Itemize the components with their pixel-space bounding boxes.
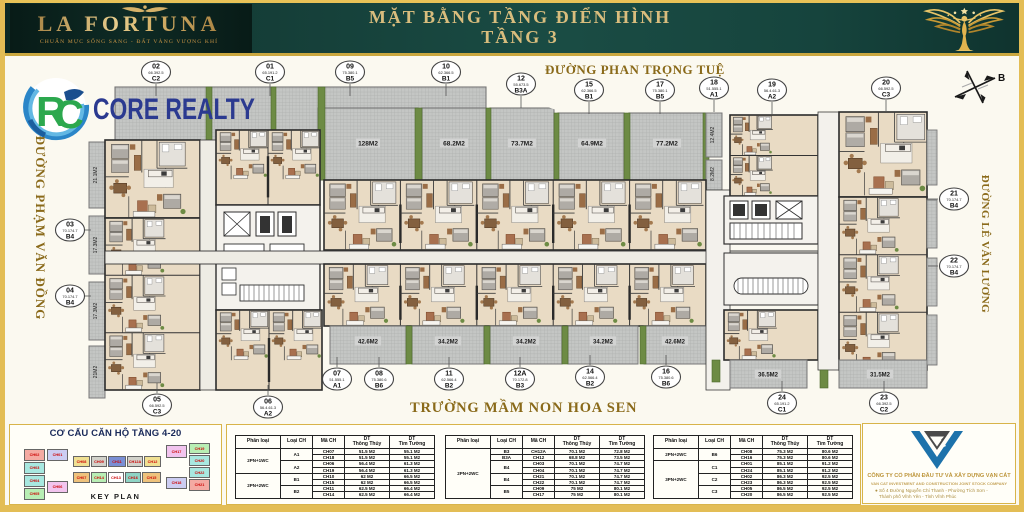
svg-text:75.380.6: 75.380.6 <box>658 375 673 380</box>
svg-text:62.366.5: 62.366.5 <box>581 88 596 93</box>
svg-text:34.2M2: 34.2M2 <box>593 340 614 346</box>
svg-text:56.4.61.3: 56.4.61.3 <box>260 405 276 410</box>
svg-text:70.172.8: 70.172.8 <box>512 377 527 382</box>
svg-text:17.3M2: 17.3M2 <box>93 302 99 319</box>
svg-text:21.1M2: 21.1M2 <box>93 166 99 183</box>
svg-text:B4: B4 <box>950 203 959 210</box>
svg-text:B5: B5 <box>656 94 665 101</box>
svg-text:51.555.1: 51.555.1 <box>329 377 344 382</box>
svg-text:B3: B3 <box>516 383 525 390</box>
svg-text:77.2M2: 77.2M2 <box>656 141 678 148</box>
svg-text:70.174.7: 70.174.7 <box>946 264 961 269</box>
svg-text:B4: B4 <box>66 234 75 241</box>
svg-text:75.380.6: 75.380.6 <box>371 377 386 382</box>
svg-text:B3A: B3A <box>514 88 527 95</box>
svg-text:C2: C2 <box>152 76 161 83</box>
svg-text:51.555.1: 51.555.1 <box>706 86 721 91</box>
svg-text:42.6M2: 42.6M2 <box>358 340 379 346</box>
svg-text:62.366.5: 62.366.5 <box>438 70 453 75</box>
svg-text:75.380.1: 75.380.1 <box>652 88 667 93</box>
svg-text:62.566.4: 62.566.4 <box>582 375 598 380</box>
svg-text:A2: A2 <box>768 94 777 101</box>
svg-text:CORE REALTY: CORE REALTY <box>93 93 255 126</box>
svg-text:56.4.61.3: 56.4.61.3 <box>764 88 780 93</box>
svg-text:34.2M2: 34.2M2 <box>438 340 459 346</box>
svg-text:B2: B2 <box>586 381 595 388</box>
svg-text:73.7M2: 73.7M2 <box>511 141 533 148</box>
svg-text:B2: B2 <box>445 383 454 390</box>
svg-text:17.3M2: 17.3M2 <box>93 236 99 253</box>
svg-text:55.673.5: 55.673.5 <box>513 82 528 87</box>
svg-text:B1: B1 <box>442 76 451 83</box>
svg-text:B: B <box>998 73 1005 84</box>
svg-text:B6: B6 <box>662 381 671 388</box>
svg-text:A1: A1 <box>710 92 719 99</box>
svg-text:B1: B1 <box>585 94 594 101</box>
svg-text:68.2M2: 68.2M2 <box>443 141 465 148</box>
svg-text:A2: A2 <box>264 411 273 418</box>
svg-text:C1: C1 <box>266 76 275 83</box>
svg-text:70.174.7: 70.174.7 <box>62 294 77 299</box>
svg-text:12.4M2: 12.4M2 <box>710 126 716 143</box>
svg-text:C3: C3 <box>153 409 162 416</box>
svg-text:B6: B6 <box>375 383 384 390</box>
svg-text:C2: C2 <box>880 407 889 414</box>
svg-text:36.5M2: 36.5M2 <box>758 373 779 379</box>
svg-text:66.392.5: 66.392.5 <box>876 401 891 406</box>
svg-text:64.9M2: 64.9M2 <box>581 141 603 148</box>
svg-text:66.392.5: 66.392.5 <box>148 70 163 75</box>
svg-text:66.592.5: 66.592.5 <box>878 86 893 91</box>
svg-text:66.592.5: 66.592.5 <box>149 403 164 408</box>
svg-text:65.191.2: 65.191.2 <box>262 70 277 75</box>
svg-text:A1: A1 <box>333 383 342 390</box>
svg-text:B4: B4 <box>950 270 959 277</box>
svg-text:B4: B4 <box>66 300 75 307</box>
svg-text:C1: C1 <box>778 407 787 414</box>
svg-text:70.174.7: 70.174.7 <box>62 228 77 233</box>
svg-text:21M2: 21M2 <box>93 366 99 379</box>
svg-text:62.566.4: 62.566.4 <box>441 377 457 382</box>
svg-text:70.174.7: 70.174.7 <box>946 197 961 202</box>
svg-text:128M2: 128M2 <box>358 141 378 148</box>
svg-text:31.5M2: 31.5M2 <box>870 373 891 379</box>
svg-text:C3: C3 <box>882 92 891 99</box>
svg-text:34.2M2: 34.2M2 <box>516 340 537 346</box>
svg-text:65.191.2: 65.191.2 <box>774 401 789 406</box>
svg-text:42.6M2: 42.6M2 <box>665 340 686 346</box>
svg-text:8.2M2: 8.2M2 <box>710 167 716 181</box>
svg-text:75.380.1: 75.380.1 <box>342 70 357 75</box>
svg-text:B5: B5 <box>346 76 355 83</box>
